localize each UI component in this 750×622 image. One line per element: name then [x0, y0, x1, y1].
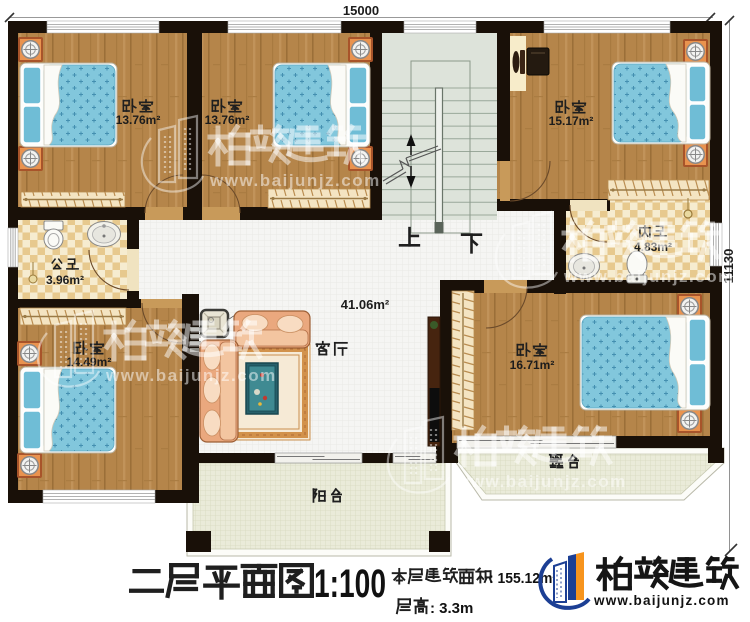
svg-text:16.71m²: 16.71m² — [510, 358, 555, 372]
svg-text:14.49m²: 14.49m² — [67, 355, 112, 369]
svg-text:www.baijunjz.com: www.baijunjz.com — [209, 171, 381, 190]
svg-text:13.76m²: 13.76m² — [205, 113, 250, 127]
svg-text:41.06m²: 41.06m² — [341, 297, 390, 312]
svg-text:www.baijunjz.com: www.baijunjz.com — [455, 472, 627, 491]
svg-text:15000: 15000 — [343, 3, 379, 18]
svg-text:www.baijunjz.com: www.baijunjz.com — [593, 593, 730, 608]
svg-text:: 155.12m²: : 155.12m² — [489, 570, 557, 587]
svg-text:3.96m²: 3.96m² — [46, 273, 84, 287]
svg-text:www.baijunjz.com: www.baijunjz.com — [105, 366, 277, 385]
svg-text:: 3.3m: : 3.3m — [430, 600, 473, 617]
svg-text:www.baijunjz.com: www.baijunjz.com — [563, 267, 735, 286]
svg-text:13.76m²: 13.76m² — [116, 113, 161, 127]
svg-text:1:100: 1:100 — [314, 562, 386, 606]
svg-text:15.17m²: 15.17m² — [549, 114, 594, 128]
